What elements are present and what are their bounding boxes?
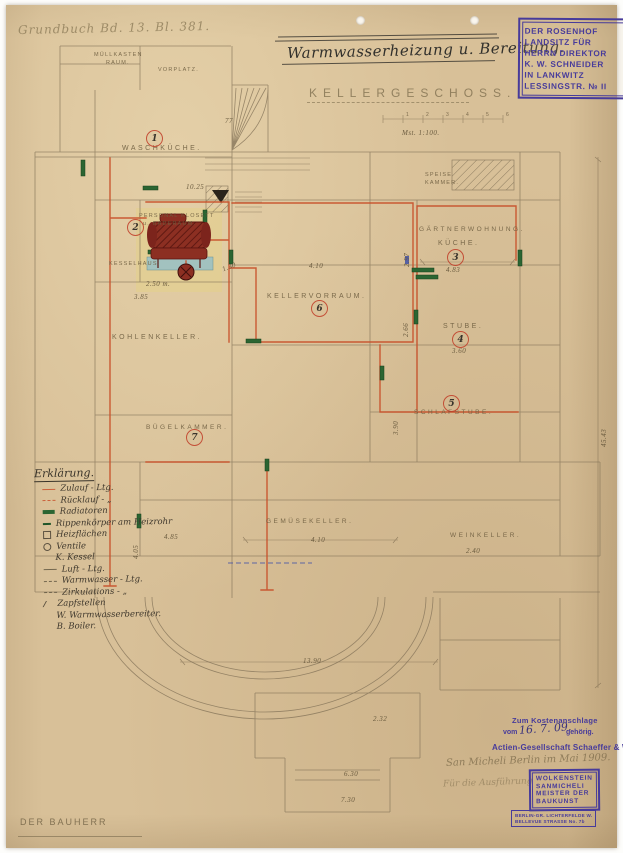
room-number-7: 7: [186, 429, 203, 446]
hot-water-line-symbol: [44, 580, 57, 581]
dim-410b: 4.10: [311, 536, 325, 544]
room-label-stube: STUBE.: [443, 323, 483, 330]
legend-entry: Zulauf - Ltg.: [42, 483, 113, 494]
room-label-kesselhaus: KESSELHAUS.: [109, 261, 160, 267]
valve-symbol: [43, 542, 51, 550]
legend-entry: Zirkulations - „: [44, 586, 127, 597]
scanned-drawing: Grundbuch Bd. 13. Bl. 381. Warmwasserhei…: [0, 0, 623, 853]
hatch-area-boiler: [206, 186, 228, 212]
dim-232: 2.32: [373, 715, 387, 723]
dim-4543: 45.43: [600, 429, 608, 447]
owner-stamp-line: DER ROSENHOF: [525, 25, 623, 37]
room-label-kohlenkeller: KOHLENKELLER.: [112, 334, 202, 341]
room-number-1: 1: [146, 130, 163, 147]
tap-symbol: [43, 601, 54, 607]
cost-estimate-stamp-gehoerig: gehörig.: [566, 729, 594, 736]
scale-tick: 4: [466, 112, 469, 118]
dim-630: 6.30: [344, 770, 358, 778]
legend-entry: B. Boiler.: [45, 621, 96, 632]
hatch-area: [452, 160, 514, 190]
dim-385: 3.85: [134, 293, 148, 301]
address-stamp-line: BELLEVUE STRASSE No. 7b: [515, 819, 592, 825]
legend: Erklärung. Zulauf - Ltg. Rücklauf - „ Ra…: [34, 462, 174, 482]
room-label-speisekammer1: SPEISE: [425, 172, 452, 178]
dim-266: 2.66: [402, 323, 410, 337]
scale-tick: 2: [426, 112, 429, 118]
legend-entry: Rücklauf - „: [42, 494, 111, 505]
scale-tick: 3: [446, 112, 449, 118]
legend-entry: Ventile: [43, 541, 86, 552]
owner-stamp-line: HERRN DIREKTOR: [525, 47, 623, 59]
room-number-3: 3: [447, 249, 464, 266]
dim-1390: 13.90: [303, 657, 321, 665]
dim-390: 3.90: [392, 421, 400, 435]
cost-estimate-stamp-vom: vom: [503, 729, 517, 736]
dim-405: 4.05: [132, 545, 140, 559]
legend-entry: Radiatoren: [43, 506, 108, 517]
room-number-6: 6: [311, 300, 328, 317]
punch-hole: [470, 16, 479, 25]
room-label-personal-klosett: PERSONAL KLOSETT: [139, 213, 215, 219]
room-label-muellkasten2: RAUM.: [106, 60, 130, 66]
circulation-line-symbol: [44, 592, 57, 593]
legend-entry: Luft - Ltg.: [44, 564, 105, 575]
owner-stamp-inner: DER ROSENHOF LANDSITZ FÜR HERRN DIREKTOR…: [521, 21, 623, 96]
rib-pipe-symbol: [43, 522, 51, 524]
architect-stamp-inner: WOLKENSTEIN SANMICHELI MEISTER DER BAUKU…: [532, 772, 597, 809]
room-number-5: 5: [443, 395, 460, 412]
wall-lines: [35, 46, 600, 812]
floor-label-underline: [307, 102, 469, 103]
heating-surface-symbol: [43, 531, 51, 539]
legend-entry: W. Warmwasserbereiter.: [44, 609, 161, 621]
dim-250m: 2.50 m.: [146, 280, 170, 288]
bauherr-signature-line: [18, 836, 142, 837]
legend-heading: Erklärung.: [34, 466, 94, 482]
legend-entry: Heizflächen: [43, 529, 107, 540]
dim-360: 3.60: [452, 347, 466, 355]
room-label-waschkueche: WASCHKÜCHE.: [122, 145, 202, 152]
dim-297: 2.97: [403, 253, 411, 267]
room-label-gemuesekeller: GEMÜSEKELLER.: [266, 518, 353, 525]
dim-1025: 10.25: [186, 183, 204, 191]
owner-stamp-line: LANDSITZ FÜR: [525, 36, 623, 48]
owner-stamp-line: LESSINGSTR. № II: [524, 80, 622, 92]
owner-stamp: DER ROSENHOF LANDSITZ FÜR HERRN DIREKTOR…: [518, 18, 623, 100]
legend-entry: K. Kessel: [43, 552, 95, 563]
room-label-kueche: KÜCHE.: [438, 240, 479, 247]
dim-410a: 4.10: [309, 262, 323, 270]
firm-stamp: Actien-Gesellschaft Schaeffer & Walcker: [492, 743, 623, 752]
air-line-symbol: [44, 569, 57, 570]
punch-hole: [356, 16, 365, 25]
architect-stamp-line: WOLKENSTEIN: [536, 775, 593, 783]
room-label-weinkeller: WEINKELLER.: [450, 532, 521, 539]
floor-label: KELLERGESCHOSS.: [309, 86, 516, 100]
supply-line-symbol: [42, 488, 55, 489]
scale-note: Mst. 1:100.: [402, 129, 440, 137]
scale-tick: 1: [406, 112, 409, 118]
owner-stamp-line: IN LANKWITZ: [524, 69, 622, 81]
dim-730: 7.30: [341, 796, 355, 804]
legend-entry: Warmwasser - Ltg.: [44, 574, 143, 586]
room-label-buegelkammer: BÜGELKAMMER.: [146, 424, 228, 431]
room-label-vorplatz: VORPLATZ.: [158, 67, 199, 73]
architect-stamp-line: BAUKUNST: [536, 797, 593, 805]
legend-entry: Zapfstellen: [44, 598, 105, 609]
scale-tick: 5: [486, 112, 489, 118]
dimension-lines: [180, 115, 601, 688]
radiator-symbol: [43, 510, 55, 514]
scale-tick: 6: [506, 112, 509, 118]
return-line-symbol: [42, 500, 55, 501]
address-stamp-line: BERLIN-GR. LICHTERFELDE W.: [515, 813, 592, 819]
dim-485: 4.85: [164, 533, 178, 541]
bauherr-label: DER BAUHERR: [20, 817, 108, 827]
address-stamp: BERLIN-GR. LICHTERFELDE W. BELLEVUE STRA…: [511, 810, 596, 827]
room-label-speisekammer2: KAMMER.: [425, 180, 459, 186]
owner-stamp-line: K. W. SCHNEIDER: [524, 58, 622, 70]
architect-stamp: WOLKENSTEIN SANMICHELI MEISTER DER BAUKU…: [529, 769, 600, 812]
architect-stamp-line: MEISTER DER: [536, 790, 593, 798]
room-label-gaertnerwohnung: GÄRTNERWOHNUNG.: [419, 226, 525, 233]
dim-77: 77: [225, 117, 233, 125]
dim-483: 4.83: [446, 266, 460, 274]
room-number-2: 2: [127, 219, 144, 236]
room-label-baderaum: u. BADERAUM.: [143, 221, 196, 227]
room-label-muellkasten: MÜLLKASTEN: [94, 52, 143, 58]
room-number-4: 4: [452, 331, 469, 348]
room-label-kellervorraum: KELLERVORRAUM.: [267, 293, 366, 300]
dim-240: 2.40: [466, 547, 480, 555]
paper-sheet: Grundbuch Bd. 13. Bl. 381. Warmwasserhei…: [6, 5, 617, 848]
